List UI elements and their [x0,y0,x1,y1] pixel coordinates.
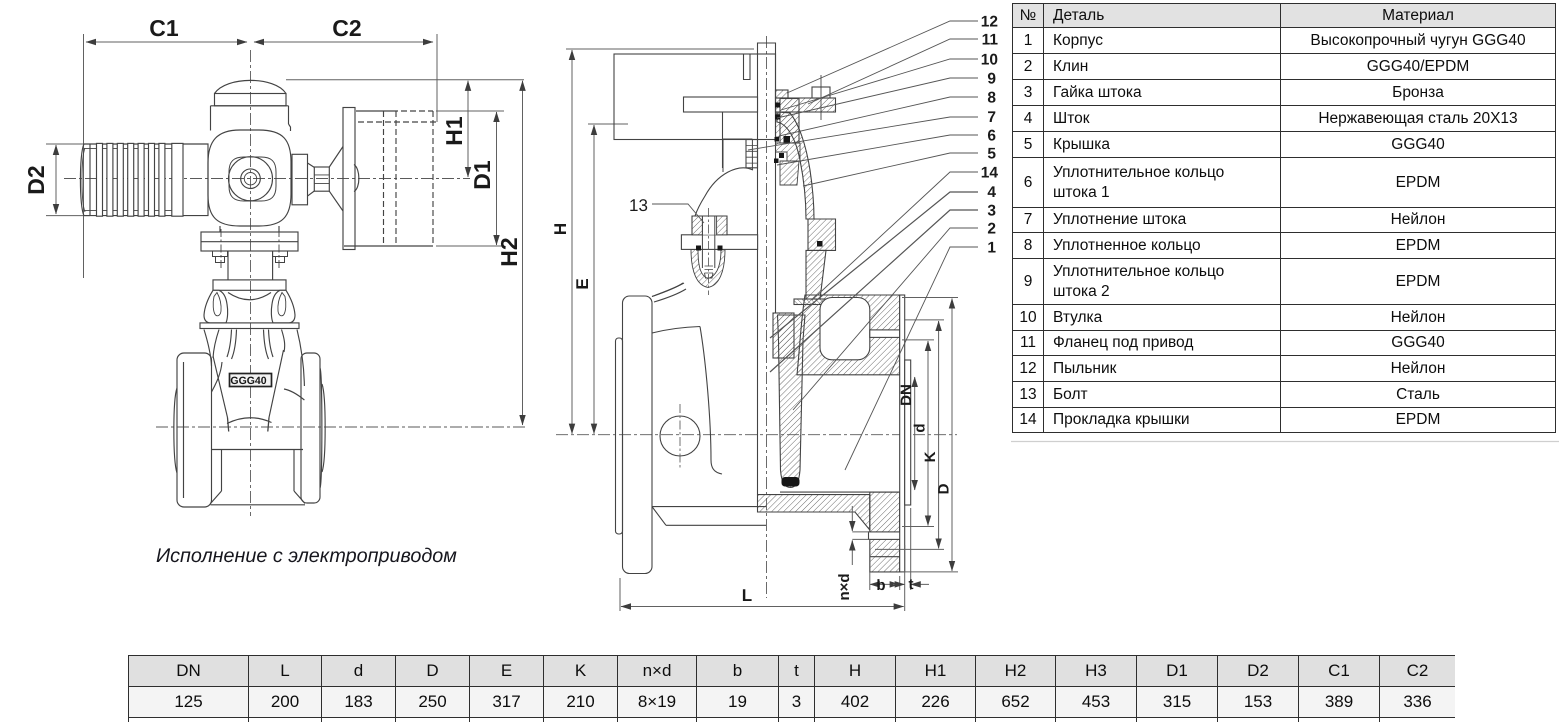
svg-text:GGG40: GGG40 [230,375,266,387]
svg-text:13: 13 [629,196,648,215]
svg-text:8: 8 [987,90,996,107]
svg-text:H1: H1 [441,116,467,146]
svg-text:L: L [742,586,752,605]
svg-text:4: 4 [987,184,996,201]
svg-text:D2: D2 [23,165,49,194]
svg-text:K: K [922,451,939,462]
svg-text:C1: C1 [149,15,179,41]
svg-text:E: E [573,278,592,289]
svg-text:n×d: n×d [836,573,853,600]
svg-text:C2: C2 [332,15,361,41]
svg-text:D: D [936,483,953,494]
svg-text:H2: H2 [496,237,522,266]
svg-text:H: H [551,223,570,235]
svg-text:10: 10 [981,52,998,69]
svg-text:d: d [912,423,929,432]
svg-text:DN: DN [898,384,915,406]
svg-text:7: 7 [987,109,996,126]
svg-text:11: 11 [982,32,999,49]
svg-text:Исполнение с электроприводом: Исполнение с электроприводом [156,545,457,567]
svg-text:1: 1 [987,240,996,257]
svg-text:b: b [876,577,885,594]
svg-text:t: t [909,576,914,593]
svg-text:12: 12 [981,14,998,31]
svg-text:14: 14 [981,165,999,182]
svg-text:9: 9 [987,71,996,88]
svg-text:6: 6 [987,128,996,145]
svg-text:D1: D1 [469,160,495,190]
svg-text:2: 2 [987,221,996,238]
svg-text:3: 3 [987,203,996,220]
svg-text:5: 5 [987,146,996,163]
